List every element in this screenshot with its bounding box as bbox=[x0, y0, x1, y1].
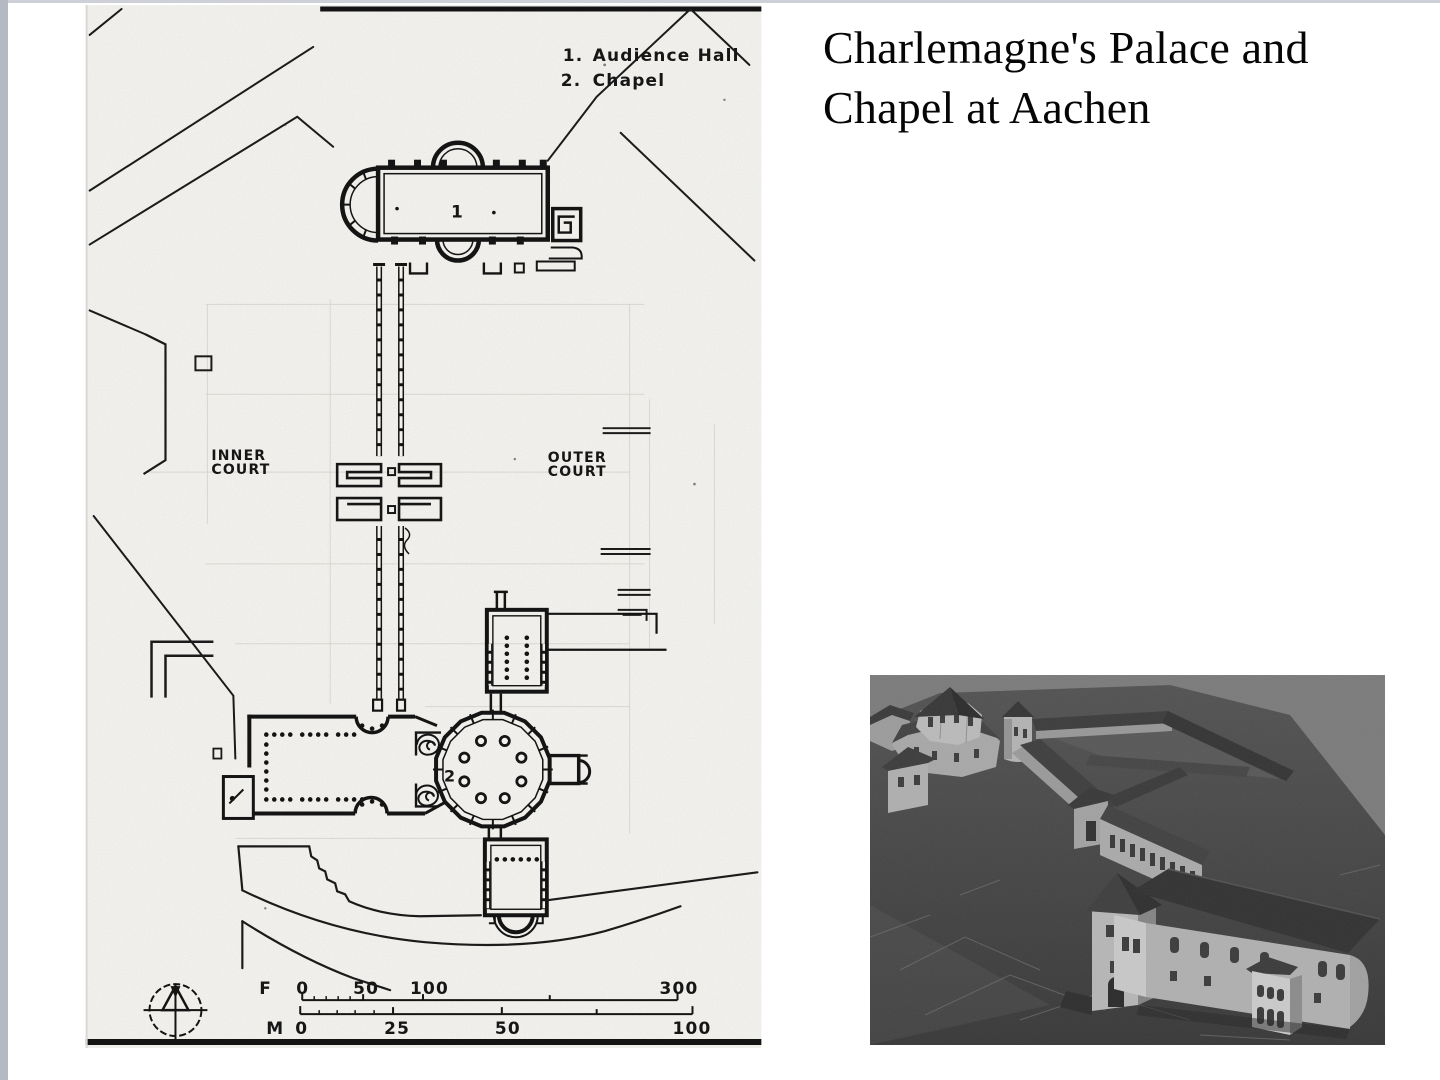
scale-feet-100: 100 bbox=[410, 978, 449, 998]
scale-meters-25: 25 bbox=[384, 1018, 410, 1038]
hall-number: 1 bbox=[451, 202, 463, 222]
slide: { "slide": { "title": "Charlemagne's Pal… bbox=[0, 0, 1440, 1080]
left-gutter bbox=[0, 0, 8, 1080]
legend-item-1-label: Audience Hall bbox=[593, 45, 740, 65]
legend-item-2-label: Chapel bbox=[593, 70, 666, 90]
scale-meters-100: 100 bbox=[673, 1018, 712, 1038]
scale-feet-unit: F bbox=[259, 978, 272, 998]
legend-item-1-num: 1. bbox=[563, 45, 584, 65]
scale-feet-0: 0 bbox=[296, 978, 309, 998]
top-rule bbox=[8, 0, 1440, 3]
paper-grain bbox=[86, 5, 762, 1048]
site-plan-figure: 1 bbox=[85, 5, 762, 1048]
scale-feet-300: 300 bbox=[660, 978, 699, 998]
scale-meters-50: 50 bbox=[495, 1018, 521, 1038]
scale-meters-unit: M bbox=[266, 1018, 284, 1038]
outer-court-label-2: COURT bbox=[548, 464, 607, 480]
legend-item-2-num: 2. bbox=[561, 70, 582, 90]
scale-feet-50: 50 bbox=[353, 978, 379, 998]
scale-meters-0: 0 bbox=[295, 1018, 308, 1038]
palace-model-photo bbox=[870, 675, 1385, 1045]
photo-grain bbox=[870, 675, 1385, 1045]
chapel-number: 2 bbox=[444, 767, 455, 786]
slide-title: Charlemagne's Palace and Chapel at Aache… bbox=[823, 18, 1371, 138]
inner-court-label-2: COURT bbox=[211, 462, 270, 478]
